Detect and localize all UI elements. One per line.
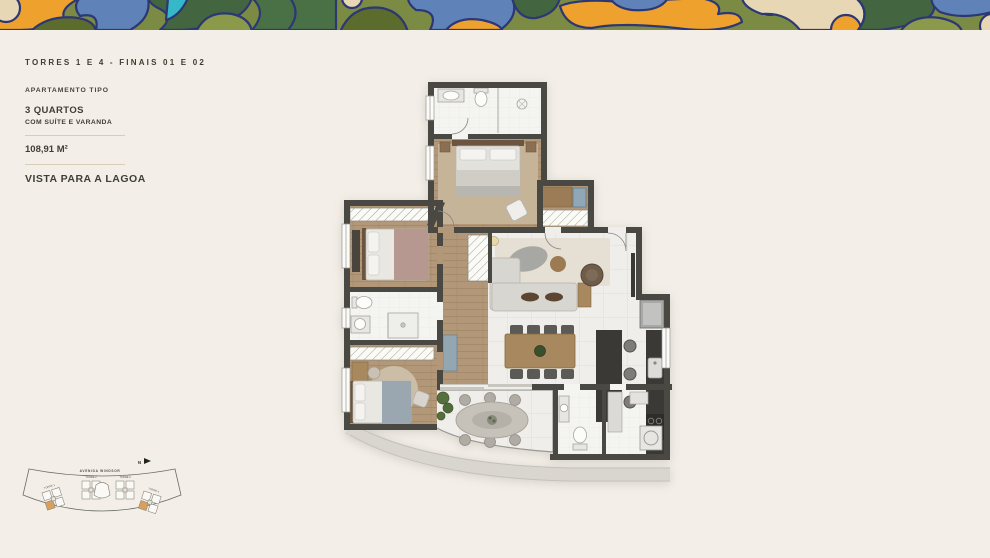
unit-info-panel: TORRES 1 E 4 - FINAIS 01 E 02 APARTAMENT… [25, 58, 295, 185]
svg-text:TORRE 2: TORRE 2 [85, 475, 97, 479]
towers-title: TORRES 1 E 4 - FINAIS 01 E 02 [25, 58, 295, 67]
master-suite [438, 134, 538, 224]
apartment-type-label: APARTAMENTO TIPO [25, 87, 295, 94]
view-note: VISTA PARA A LAGOA [25, 173, 295, 185]
suite-note: COM SUÍTE E VARANDA [25, 119, 295, 126]
closet-room [540, 187, 588, 226]
street-label: AVENIDA WINDSOR [80, 469, 121, 473]
decorative-pattern-band [0, 0, 990, 30]
tower-1: TORRE 1 [40, 482, 65, 510]
hall-cabinet [443, 335, 457, 371]
svg-text:N: N [138, 460, 141, 465]
bedroom-2 [350, 208, 437, 280]
north-arrow-icon: N [138, 458, 151, 465]
hall-wardrobe [468, 235, 490, 281]
clubhouse [94, 483, 110, 499]
site-key-plan: AVENIDA WINDSOR N TORRE 1 TORRE 2 [22, 446, 182, 526]
bedrooms-heading: 3 QUARTOS [25, 105, 295, 116]
page: TORRES 1 E 4 - FINAIS 01 E 02 APARTAMENT… [0, 0, 990, 558]
floor-plan [340, 78, 680, 504]
tower-4: TORRE 4 [138, 485, 163, 513]
tower-3: TORRE 3 [116, 475, 134, 499]
divider [25, 135, 125, 136]
area-value: 108,91 M² [25, 144, 295, 155]
svg-text:TORRE 3: TORRE 3 [119, 475, 131, 479]
divider [25, 164, 125, 165]
